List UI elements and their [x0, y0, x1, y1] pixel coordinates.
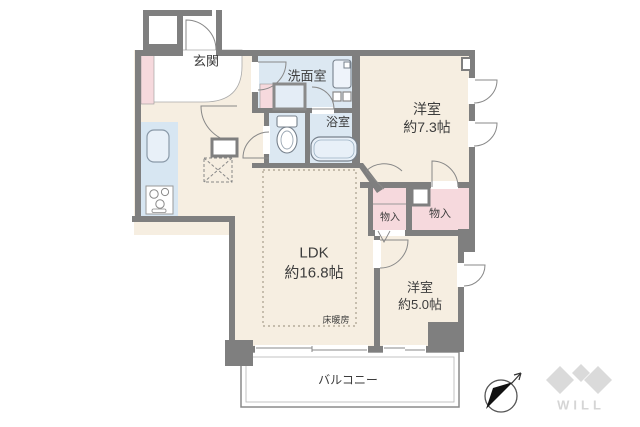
- window-arc-3: [464, 265, 485, 286]
- washroom-label: 洗面室: [287, 69, 326, 86]
- western-room-1-label: 洋室約7.3帖: [403, 100, 450, 136]
- floor-plan-drawing: [0, 0, 640, 427]
- window-arc-1: [474, 80, 497, 103]
- ldk-label: LDK約16.8帖: [284, 244, 343, 283]
- entrance-label: 玄関: [193, 54, 219, 71]
- wall-closet-small-left: [368, 188, 373, 236]
- floor-heating-label: 床暖房: [322, 315, 349, 327]
- balcony-label: バルコニー: [318, 373, 378, 389]
- wall-toilet-bath: [305, 112, 310, 163]
- wall-step-left: [132, 216, 235, 222]
- wall-left: [135, 50, 141, 222]
- wall-top: [222, 50, 475, 56]
- wall-left-lower: [229, 222, 235, 352]
- counter: [212, 139, 237, 156]
- closet-pillar: [412, 188, 429, 205]
- floor-plan-canvas: 玄関 洗面室 浴室 洋室約7.3帖 物入 物入 LDK約16.8帖 床暖房 洋室…: [0, 0, 640, 427]
- toilet: [277, 116, 297, 127]
- window-arc-2: [474, 123, 497, 146]
- pillar-notch: [462, 58, 471, 70]
- wall-corner-block-left: [225, 340, 253, 366]
- closet-large-label: 物入: [429, 207, 451, 221]
- front-door-arc: [186, 20, 216, 50]
- bathroom-label: 浴室: [326, 115, 350, 131]
- kitchen-sink: [147, 130, 169, 162]
- western-room-2-label: 洋室約5.0帖: [398, 280, 442, 314]
- wall-wet-bottom: [252, 163, 360, 168]
- washer-pan: [274, 84, 305, 109]
- will-logo-text: WILL: [557, 398, 605, 415]
- shoe-cabinet: [141, 52, 154, 104]
- hall-storage: [260, 84, 273, 109]
- compass-icon: [485, 373, 521, 412]
- north-arrow: [511, 373, 521, 384]
- will-logo-icon: [546, 364, 612, 394]
- closet-small-label: 物入: [380, 212, 400, 225]
- compass-needle: [486, 382, 513, 409]
